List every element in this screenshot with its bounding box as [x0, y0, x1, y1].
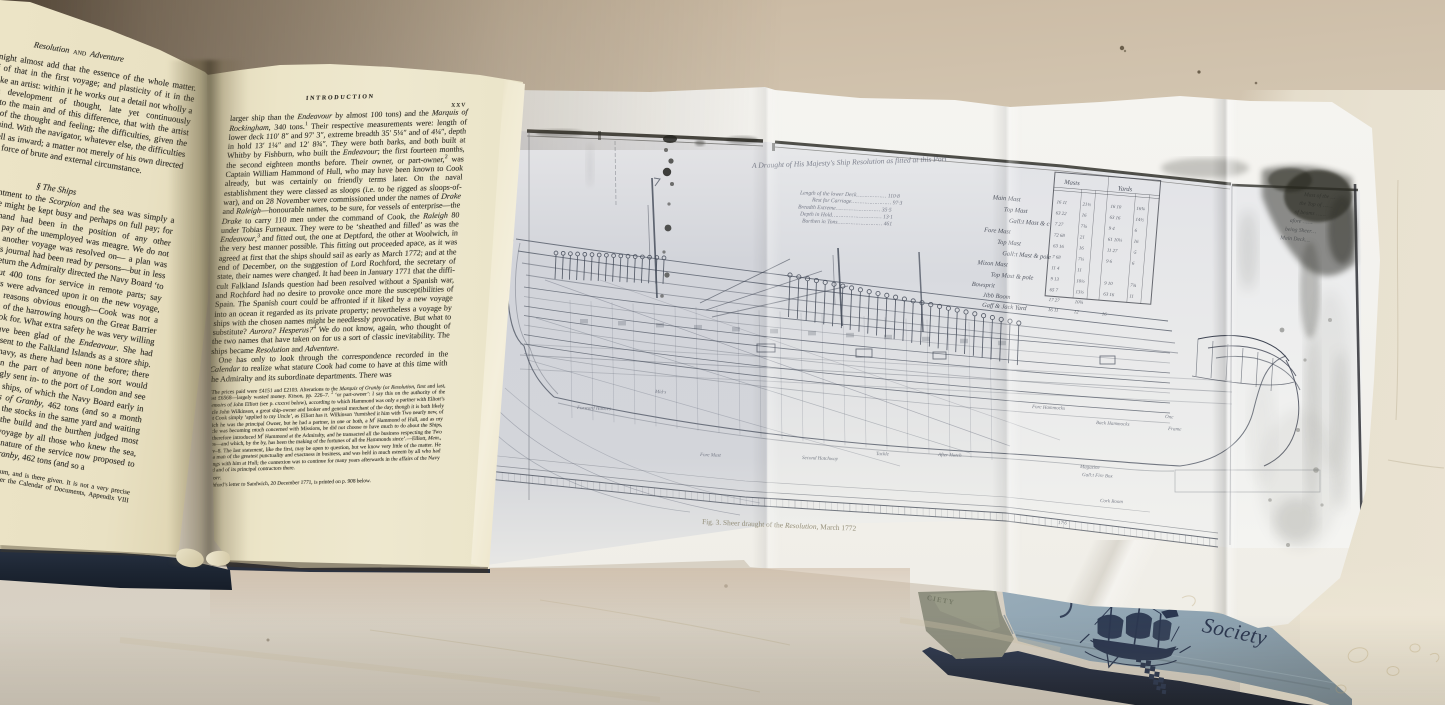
svg-text:17 27: 17 27	[1049, 298, 1061, 304]
svg-text:Masts: Masts	[1063, 179, 1081, 187]
svg-text:11: 11	[1077, 268, 1082, 273]
svg-text:9 10: 9 10	[1104, 281, 1113, 287]
svg-text:11: 11	[1129, 295, 1134, 300]
svg-text:7 68: 7 68	[1052, 255, 1061, 261]
svg-text:63 16: 63 16	[1103, 292, 1115, 298]
svg-text:Fore Mast: Fore Mast	[699, 453, 722, 459]
svg-text:7½: 7½	[1078, 257, 1085, 262]
svg-text:9 4: 9 4	[1108, 227, 1115, 233]
svg-text:63 16: 63 16	[1053, 244, 1065, 250]
svg-text:17·6: 17·6	[1058, 521, 1067, 526]
svg-text:One: One	[1165, 415, 1174, 420]
svg-text:11 4: 11 4	[1051, 266, 1060, 272]
svg-text:Tackle: Tackle	[876, 452, 890, 457]
svg-text:16 11: 16 11	[1048, 308, 1059, 314]
svg-text:7¾: 7¾	[1130, 284, 1137, 289]
svg-text:11 27: 11 27	[1107, 249, 1118, 255]
svg-text:13½: 13½	[1075, 290, 1084, 296]
svg-text:9 13: 9 13	[1050, 277, 1059, 283]
svg-text:21½: 21½	[1082, 202, 1091, 208]
svg-text:14½: 14½	[1135, 218, 1144, 224]
svg-text:16¾: 16¾	[1136, 207, 1145, 213]
svg-text:After Hatch: After Hatch	[937, 453, 962, 459]
svg-text:Frame: Frame	[1167, 427, 1182, 433]
svg-text:7 27: 7 27	[1055, 222, 1064, 228]
svg-text:Yards: Yards	[1118, 185, 1133, 193]
svg-text:72 68: 72 68	[1054, 233, 1066, 239]
svg-text:10¾: 10¾	[1074, 300, 1083, 306]
svg-text:21: 21	[1080, 235, 1085, 240]
svg-text:16 10: 16 10	[1110, 205, 1122, 211]
svg-text:Mid·s: Mid·s	[654, 390, 666, 395]
svg-text:63 16: 63 16	[1109, 216, 1121, 222]
svg-text:16 11: 16 11	[1056, 200, 1067, 206]
svg-text:9 6: 9 6	[1106, 260, 1113, 266]
svg-text:63 22: 63 22	[1055, 211, 1067, 217]
svg-text:10½: 10½	[1076, 279, 1085, 285]
svg-text:7¾: 7¾	[1081, 224, 1088, 229]
svg-text:65 7: 65 7	[1049, 288, 1058, 294]
